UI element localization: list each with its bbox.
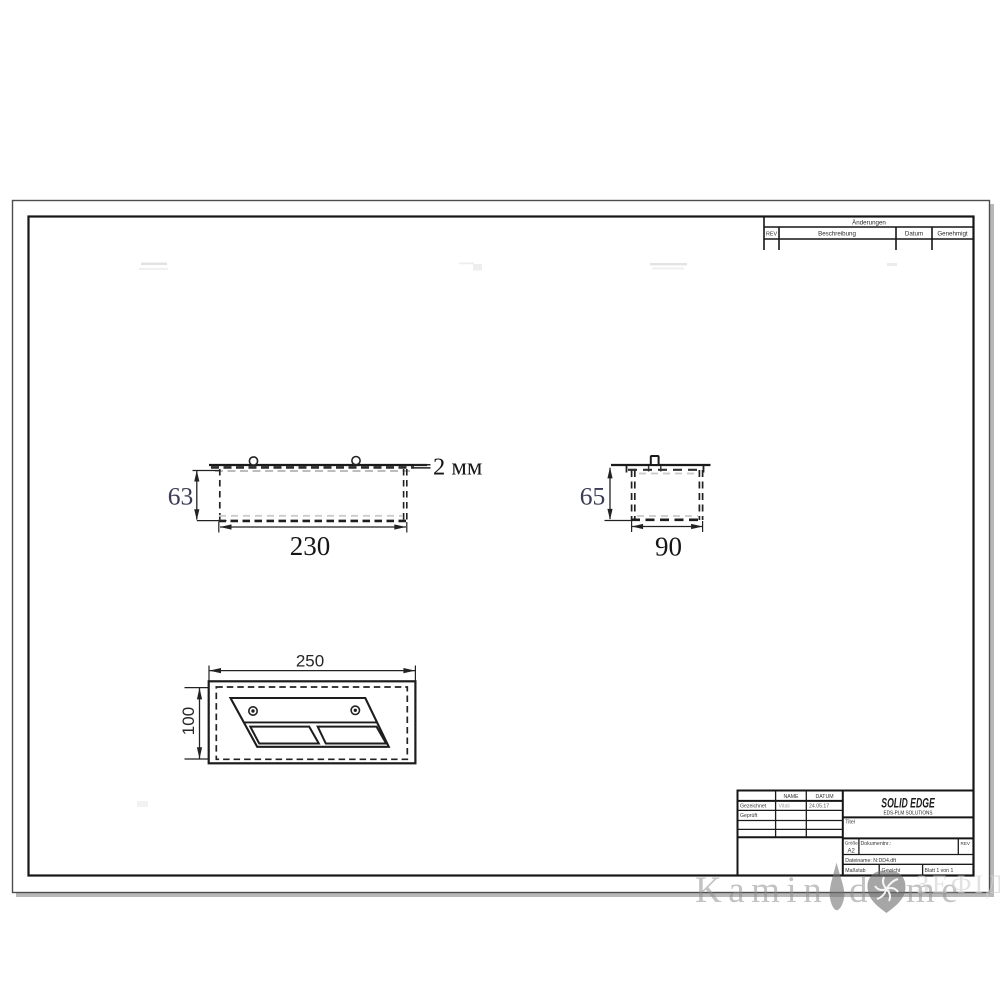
svg-text:Größe: Größe <box>845 840 858 845</box>
svg-text:EDS-PLM SOLUTIONS: EDS-PLM SOLUTIONS <box>883 810 933 816</box>
svg-text:Vitali: Vitali <box>779 804 790 810</box>
svg-text:250: 250 <box>296 652 324 671</box>
svg-text:A2: A2 <box>848 849 856 855</box>
svg-text:Änderungen: Änderungen <box>852 220 886 227</box>
svg-text:Kamin: Kamin <box>695 870 828 911</box>
svg-text:Geprüft: Geprüft <box>740 813 758 819</box>
svg-text:24.05.17: 24.05.17 <box>809 804 829 810</box>
svg-text:d: d <box>849 870 868 911</box>
svg-text:Titel: Titel <box>845 820 855 826</box>
svg-text:100: 100 <box>179 707 198 735</box>
svg-text:90: 90 <box>655 532 682 562</box>
svg-text:Beschreibung: Beschreibung <box>818 231 856 238</box>
svg-text:Gezeichnet: Gezeichnet <box>740 804 767 810</box>
svg-text:ЗЕФIДI: ЗЕФIДI <box>916 870 1000 899</box>
svg-text:Genehmigt: Genehmigt <box>937 231 968 238</box>
svg-text:DATUM: DATUM <box>815 794 833 800</box>
svg-text:Datum: Datum <box>905 231 923 238</box>
svg-text:2 мм: 2 мм <box>433 454 482 481</box>
svg-text:NAME: NAME <box>784 794 800 800</box>
svg-text:REV: REV <box>766 232 777 238</box>
svg-text:REV: REV <box>961 841 971 846</box>
svg-text:Dateiname: N:DD4.dft: Dateiname: N:DD4.dft <box>845 858 896 864</box>
svg-text:Dokumentnr.:: Dokumentnr.: <box>861 841 892 847</box>
svg-text:65: 65 <box>580 482 606 511</box>
svg-text:SOLID EDGE: SOLID EDGE <box>881 795 935 811</box>
svg-text:63: 63 <box>168 482 194 511</box>
svg-text:230: 230 <box>290 531 331 561</box>
